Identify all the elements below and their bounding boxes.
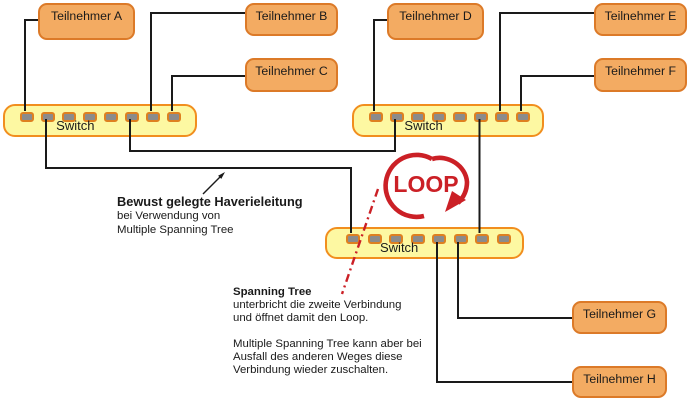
node-teilnehmer-h: Teilnehmer H: [572, 366, 667, 398]
port-icon: [474, 112, 488, 122]
port-row: [20, 112, 181, 122]
link-b-switch-left: [151, 13, 245, 111]
annotation-title: Spanning Tree: [233, 286, 422, 299]
loop-label: LOOP: [393, 171, 458, 197]
loop-hook-icon: [432, 158, 467, 203]
port-icon: [369, 112, 383, 122]
port-icon: [516, 112, 530, 122]
annotation-line: unterbricht die zweite Verbindung: [233, 299, 422, 312]
port-icon: [167, 112, 181, 122]
switch-left: Switch: [3, 104, 197, 137]
node-label: Teilnehmer C: [247, 60, 336, 78]
node-teilnehmer-a: Teilnehmer A: [38, 3, 135, 40]
node-teilnehmer-b: Teilnehmer B: [245, 3, 338, 36]
port-icon: [454, 234, 468, 244]
network-loop-diagram: Teilnehmer A Teilnehmer B Teilnehmer C T…: [0, 0, 699, 402]
node-label: Teilnehmer E: [596, 5, 685, 23]
port-icon: [497, 234, 511, 244]
node-teilnehmer-d: Teilnehmer D: [387, 3, 484, 40]
node-teilnehmer-f: Teilnehmer F: [594, 58, 687, 92]
annotation-spanning-tree: Spanning Tree unterbricht die zweite Ver…: [233, 286, 422, 377]
annotation-line: und öffnet damit den Loop.: [233, 312, 422, 325]
port-icon: [20, 112, 34, 122]
node-label: Teilnehmer D: [389, 5, 482, 23]
link-a-switch-left: [25, 20, 38, 111]
annotation-line: Multiple Spanning Tree kann aber bei: [233, 338, 422, 351]
port-icon: [146, 112, 160, 122]
port-icon: [346, 234, 360, 244]
port-icon: [475, 234, 489, 244]
port-row: [369, 112, 530, 122]
port-icon: [125, 112, 139, 122]
switch-right: Switch: [352, 104, 544, 137]
annotation-arrow: [203, 176, 221, 194]
port-icon: [390, 112, 404, 122]
port-row: [346, 234, 511, 244]
annotation-arrowhead-icon: [218, 172, 225, 179]
node-teilnehmer-g: Teilnehmer G: [572, 301, 667, 334]
node-teilnehmer-c: Teilnehmer C: [245, 58, 338, 92]
annotation-line: bei Verwendung von: [117, 209, 303, 223]
switch-label: Switch: [56, 118, 94, 133]
port-icon: [495, 112, 509, 122]
port-icon: [41, 112, 55, 122]
loop-circle-icon: [386, 155, 432, 217]
switch-bottom: Switch: [325, 227, 524, 259]
annotation-haverieleitung: Bewust gelegte Haverieleitung bei Verwen…: [117, 195, 303, 237]
port-icon: [453, 112, 467, 122]
annotation-title: Bewust gelegte Haverieleitung: [117, 195, 303, 209]
switch-label: Switch: [404, 118, 442, 133]
node-teilnehmer-e: Teilnehmer E: [594, 3, 687, 36]
switch-label: Switch: [380, 240, 418, 255]
loop-arrowhead-icon: [445, 191, 466, 212]
annotation-line: Multiple Spanning Tree: [117, 223, 303, 237]
node-label: Teilnehmer G: [574, 303, 665, 321]
node-label: Teilnehmer A: [40, 5, 133, 23]
node-label: Teilnehmer H: [574, 368, 665, 386]
link-switch-bottom-h: [437, 242, 572, 382]
link-e-switch-right: [500, 13, 594, 111]
port-icon: [104, 112, 118, 122]
annotation-line: Ausfall des anderen Weges diese: [233, 351, 422, 364]
node-label: Teilnehmer F: [596, 60, 685, 78]
link-d-switch-right: [374, 20, 387, 111]
node-label: Teilnehmer B: [247, 5, 336, 23]
port-icon: [432, 234, 446, 244]
annotation-line: Verbindung wieder zuschalten.: [233, 364, 422, 377]
